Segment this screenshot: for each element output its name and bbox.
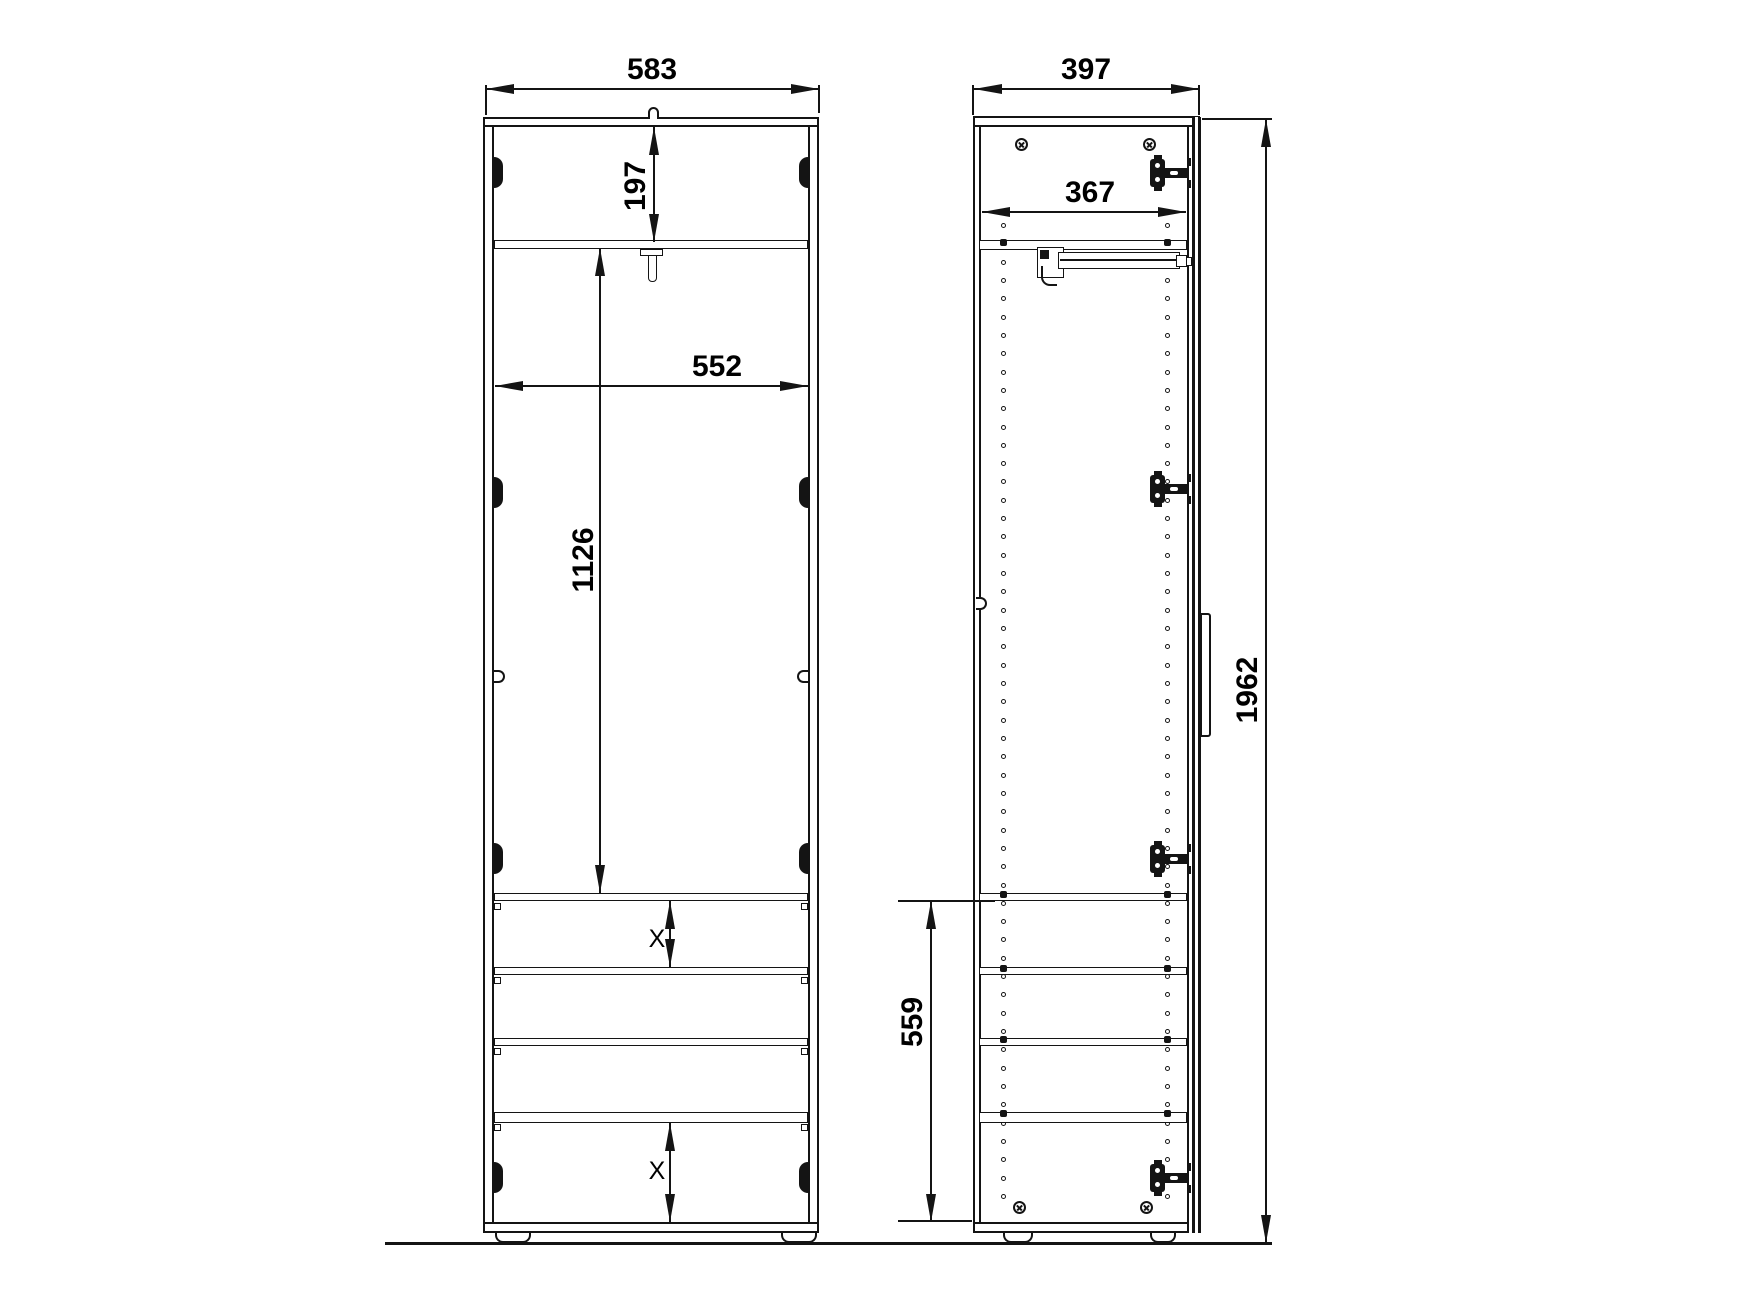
shelf-pin-hole <box>1001 608 1006 613</box>
dim-559-ext-top <box>898 900 995 902</box>
shelf-pin-hole <box>1001 388 1006 393</box>
dim-583-arrow-right <box>791 84 819 94</box>
shelf-pin-hole <box>1165 1139 1170 1144</box>
side-bottom-panel <box>973 1222 1189 1233</box>
shelf-pin-hole <box>1165 315 1170 320</box>
shelf-pin-hole <box>1001 773 1006 778</box>
dim-gap-upper-label: X <box>637 924 677 954</box>
shelf-pin-hole <box>1001 571 1006 576</box>
hinge-cup-mark <box>799 157 808 188</box>
wall-mount-bracket-icon <box>648 107 659 119</box>
shelf-pin-hole <box>1165 1029 1170 1034</box>
shelf-support-clip <box>801 1124 808 1131</box>
shelf-pin-hole <box>1165 608 1170 613</box>
side-top-shelf <box>979 240 1187 250</box>
dim-552-arrow-left <box>495 381 523 391</box>
shelf-pin-hole <box>1001 223 1006 228</box>
shelf-pin <box>1164 891 1171 898</box>
shelf-pin <box>1164 1036 1171 1043</box>
shelf-pin-hole <box>1001 1194 1006 1199</box>
hinge-cup-mark <box>494 157 503 188</box>
shelf-pin-hole <box>1001 315 1006 320</box>
side-shelf-3 <box>979 1038 1187 1046</box>
dim-367-arrow-right <box>1158 207 1186 217</box>
screw-icon <box>1015 138 1028 151</box>
shelf-pin-hole <box>1165 589 1170 594</box>
dim-1126-arrow-up <box>595 248 605 276</box>
shelf-pin-hole <box>1001 461 1006 466</box>
shelf-pin-hole <box>1165 370 1170 375</box>
door-hinge-icon <box>1148 471 1191 507</box>
shelf-pin-hole <box>1165 901 1170 906</box>
side-shelf-1 <box>979 893 1187 901</box>
side-shelf-2 <box>979 967 1187 975</box>
dim-1962-arrow-down <box>1261 1215 1271 1243</box>
shelf-pin-hole <box>1165 1066 1170 1071</box>
shelf-support-clip <box>494 977 501 984</box>
shelf-pin-hole <box>1165 736 1170 741</box>
rail-end-tab <box>1186 257 1192 266</box>
shelf-pin-hole <box>1165 351 1170 356</box>
shelf-pin-hole <box>1165 1102 1170 1107</box>
shelf-pin-hole <box>1165 663 1170 668</box>
shelf-pin-hole <box>1001 553 1006 558</box>
shelf-pin-hole <box>1001 1157 1006 1162</box>
shelf-pin-hole <box>1001 663 1006 668</box>
dim-interior-width-label: 552 <box>657 352 777 382</box>
shelf-pin-hole <box>1001 736 1006 741</box>
dim-1962-line <box>1265 119 1267 1243</box>
shelf-pin-hole <box>1165 937 1170 942</box>
shelf-pin-hole <box>1001 626 1006 631</box>
screw-icon <box>1140 1201 1153 1214</box>
shelf-pin-hole <box>1001 1084 1006 1089</box>
cam-lock-mark <box>797 670 808 683</box>
ground-line <box>385 1242 1272 1245</box>
screw-icon <box>1013 1201 1026 1214</box>
side-back-inner-line <box>979 127 981 1231</box>
shelf-pin-hole <box>1165 296 1170 301</box>
shelf-pin-hole <box>1165 534 1170 539</box>
shelf-pin-hole <box>1001 296 1006 301</box>
dim-552-line <box>495 385 808 387</box>
shelf-pin-hole <box>1165 699 1170 704</box>
front-shelf-2 <box>494 967 808 975</box>
shelf-support-clip <box>494 1124 501 1131</box>
shelf-pin-hole <box>1001 956 1006 961</box>
rail-bracket-block <box>1040 250 1049 259</box>
shelf-pin-hole <box>1165 516 1170 521</box>
shelf-pin-hole <box>1165 1011 1170 1016</box>
shelf-pin-hole <box>1001 498 1006 503</box>
shelf-pin-hole <box>1165 406 1170 411</box>
shelf-pin-hole <box>1001 479 1006 484</box>
cam-lock-mark <box>494 670 505 683</box>
shelf-pin-hole <box>1165 388 1170 393</box>
shelf-pin-hole <box>1001 516 1006 521</box>
dim-583-line <box>486 88 819 90</box>
dim-depth-label: 397 <box>1026 55 1146 85</box>
shelf-pin <box>1164 1110 1171 1117</box>
shelf-support-clip <box>494 903 501 910</box>
dim-397-arrow-right <box>1171 84 1199 94</box>
shelf-pin-hole <box>1001 828 1006 833</box>
dim-559-arrow-down <box>926 1194 936 1222</box>
shelf-pin <box>1000 1110 1007 1117</box>
shelf-pin-hole <box>1001 809 1006 814</box>
shelf-pin-hole <box>1001 919 1006 924</box>
shelf-pin-hole <box>1001 901 1006 906</box>
technical-drawing-sheet: 583 197 552 1126 X X <box>0 0 1749 1311</box>
shelf-pin-hole <box>1165 883 1170 888</box>
shelf-pin-hole <box>1001 534 1006 539</box>
shelf-pin-hole <box>1165 1084 1170 1089</box>
dim-lower-section-label: 559 <box>898 962 928 1082</box>
dim-1962-arrow-up <box>1261 119 1271 147</box>
shelf-pin <box>1164 965 1171 972</box>
shelf-pin-hole <box>1165 425 1170 430</box>
shelf-pin-hole <box>1001 260 1006 265</box>
shelf-pin-hole <box>1001 681 1006 686</box>
shelf-pin-hole <box>1165 773 1170 778</box>
side-shelf-4 <box>979 1112 1187 1123</box>
shelf-pin <box>1164 239 1171 246</box>
hinge-cup-mark <box>494 1162 503 1193</box>
shelf-pin <box>1000 891 1007 898</box>
shelf-pin-hole <box>1001 278 1006 283</box>
front-shelf-4 <box>494 1112 808 1123</box>
shelf-pin-hole <box>1001 791 1006 796</box>
shelf-pin-hole <box>1165 571 1170 576</box>
shelf-pin-hole <box>1001 1066 1006 1071</box>
dim-x2-arrow-down <box>665 1194 675 1222</box>
shelf-pin-hole <box>1001 333 1006 338</box>
shelf-pin-hole <box>1001 406 1006 411</box>
dim-367-line <box>982 211 1186 213</box>
dim-interior-depth-label: 367 <box>1030 178 1150 208</box>
rail-tube <box>1058 252 1180 269</box>
front-left-side-panel <box>483 125 494 1233</box>
shelf-pin-hole <box>1165 223 1170 228</box>
shelf-pin-hole <box>1001 754 1006 759</box>
shelf-pin-hole <box>1165 919 1170 924</box>
shelf-pin-hole <box>1001 644 1006 649</box>
dim-559-line <box>930 901 932 1222</box>
shelf-pin-hole <box>1001 937 1006 942</box>
door-hinge-icon <box>1148 841 1191 877</box>
shelf-pin-hole <box>1165 992 1170 997</box>
shelf-pin-hole <box>1165 644 1170 649</box>
shelf-pin-hole <box>1165 333 1170 338</box>
hinge-cup-mark <box>494 477 503 508</box>
shelf-pin-hole <box>1165 828 1170 833</box>
dim-397-arrow-left <box>974 84 1002 94</box>
shelf-support-clip <box>801 977 808 984</box>
door-hinge-icon <box>1148 1160 1191 1196</box>
front-bottom-panel <box>483 1222 819 1233</box>
dim-interior-height-label: 1126 <box>569 500 599 620</box>
shelf-pin-hole <box>1165 1047 1170 1052</box>
rail-tube-line <box>1060 259 1178 261</box>
shelf-pin-hole <box>1001 351 1006 356</box>
shelf-pin-hole <box>1165 718 1170 723</box>
shelf-pin-hole <box>1001 443 1006 448</box>
dim-1126-arrow-down <box>595 865 605 893</box>
side-door-handle <box>1200 613 1211 737</box>
shelf-pin-hole <box>1165 809 1170 814</box>
dim-front-width-label: 583 <box>592 55 712 85</box>
shelf-pin <box>1000 239 1007 246</box>
screw-icon <box>1143 138 1156 151</box>
dim-552-arrow-right <box>780 381 808 391</box>
shelf-pin-hole <box>1001 1102 1006 1107</box>
shelf-pin-hole <box>1165 754 1170 759</box>
front-rail-holder-stem <box>648 255 657 282</box>
shelf-pin-hole <box>1001 1047 1006 1052</box>
dim-559-arrow-up <box>926 901 936 929</box>
shelf-support-clip <box>801 903 808 910</box>
shelf-pin-hole <box>1001 699 1006 704</box>
shelf-pin-hole <box>1001 883 1006 888</box>
shelf-pin-hole <box>1001 864 1006 869</box>
dim-gap-lower-label: X <box>637 1156 677 1186</box>
front-right-side-panel <box>808 125 819 1233</box>
dim-367-arrow-left <box>982 207 1010 217</box>
shelf-pin-hole <box>1165 443 1170 448</box>
shelf-pin-hole <box>1001 1139 1006 1144</box>
dim-total-height-label: 1962 <box>1233 630 1263 750</box>
shelf-pin-hole <box>1001 1011 1006 1016</box>
dim-top-section-label: 197 <box>621 126 651 246</box>
hinge-cup-mark <box>799 843 808 874</box>
hinge-cup-mark <box>799 1162 808 1193</box>
hinge-cup-mark <box>799 477 808 508</box>
shelf-pin-hole <box>1001 589 1006 594</box>
shelf-pin-hole <box>1001 846 1006 851</box>
shelf-pin-hole <box>1001 718 1006 723</box>
shelf-pin <box>1000 1036 1007 1043</box>
rail-hook <box>1041 266 1057 286</box>
shelf-pin-hole <box>1001 370 1006 375</box>
dim-583-arrow-left <box>486 84 514 94</box>
shelf-pin-hole <box>1001 1029 1006 1034</box>
shelf-pin <box>1000 965 1007 972</box>
front-shelf-3 <box>494 1038 808 1046</box>
shelf-pin-hole <box>1165 461 1170 466</box>
shelf-pin-hole <box>1165 791 1170 796</box>
dim-x2-arrow-up <box>665 1123 675 1151</box>
shelf-pin-hole <box>1001 992 1006 997</box>
shelf-pin-hole <box>1165 681 1170 686</box>
shelf-pin-hole <box>1165 278 1170 283</box>
dim-397-line <box>974 88 1200 90</box>
door-hinge-icon <box>1148 155 1191 191</box>
shelf-pin-hole <box>1001 1176 1006 1181</box>
shelf-pin-hole <box>1165 626 1170 631</box>
hinge-cup-mark <box>494 843 503 874</box>
shelf-support-clip <box>801 1048 808 1055</box>
front-shelf-1 <box>494 893 808 901</box>
shelf-pin-hole <box>1165 956 1170 961</box>
side-top-panel <box>973 116 1200 127</box>
shelf-support-clip <box>494 1048 501 1055</box>
shelf-pin-hole <box>1165 553 1170 558</box>
shelf-pin-hole <box>1001 425 1006 430</box>
